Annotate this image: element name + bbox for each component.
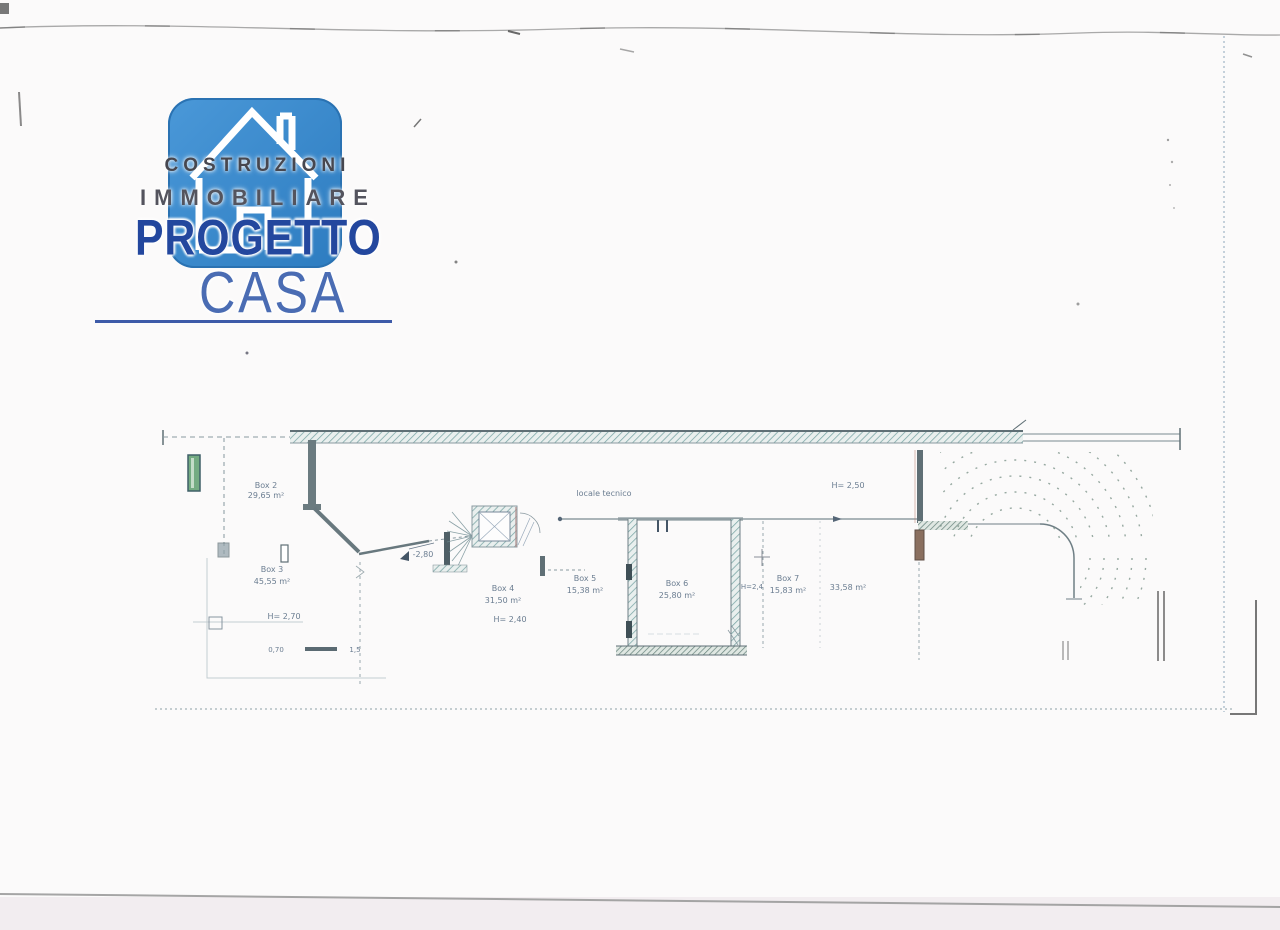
sheet-bottom-edge [0,894,1280,930]
room-label-height: H= 2,50 [831,481,864,490]
room-label-name: Box 3 [261,565,284,574]
plan-note-label: locale tecnico [576,489,631,498]
ramp-section [871,412,1160,678]
stair-elevator-core [433,506,585,576]
room-label-name: Box 2 [255,481,278,490]
room-label-area: 15,38 m² [567,586,603,595]
room-label-height: H=2,4 [741,583,764,591]
room-label-height: H= 2,70 [267,612,300,621]
logo-text-casa: CASA [161,258,386,326]
room-label-area: 29,65 m² [248,491,284,500]
room-label-height: H= 2,40 [493,615,526,624]
logo-underline [95,320,392,323]
room-label-area: 31,50 m² [485,596,521,605]
scanned-document-sheet: Box 2 29,65 m² Box 3 45,55 m² H= 2,70 Bo… [0,0,1280,930]
dimension-label: 1,5 [349,646,360,654]
logo-text-costruzioni: COSTRUZIONI [150,155,365,177]
room-label-area: 25,80 m² [659,591,695,600]
room-label-area: 45,55 m² [254,577,290,586]
room-label-area: 33,58 m² [830,583,866,592]
room-label-name: Box 7 [777,574,800,583]
room-label-area: 15,83 m² [770,586,806,595]
level-marker-label: -2,80 [413,550,434,559]
scan-artifact-top-line [0,26,1280,35]
room-label-name: Box 6 [666,579,689,588]
ramp-hatch-lower [1040,558,1160,678]
dimension-label: 0,70 [268,646,284,654]
room-label-name: Box 4 [492,584,515,593]
room-label-name: Box 5 [574,574,597,583]
